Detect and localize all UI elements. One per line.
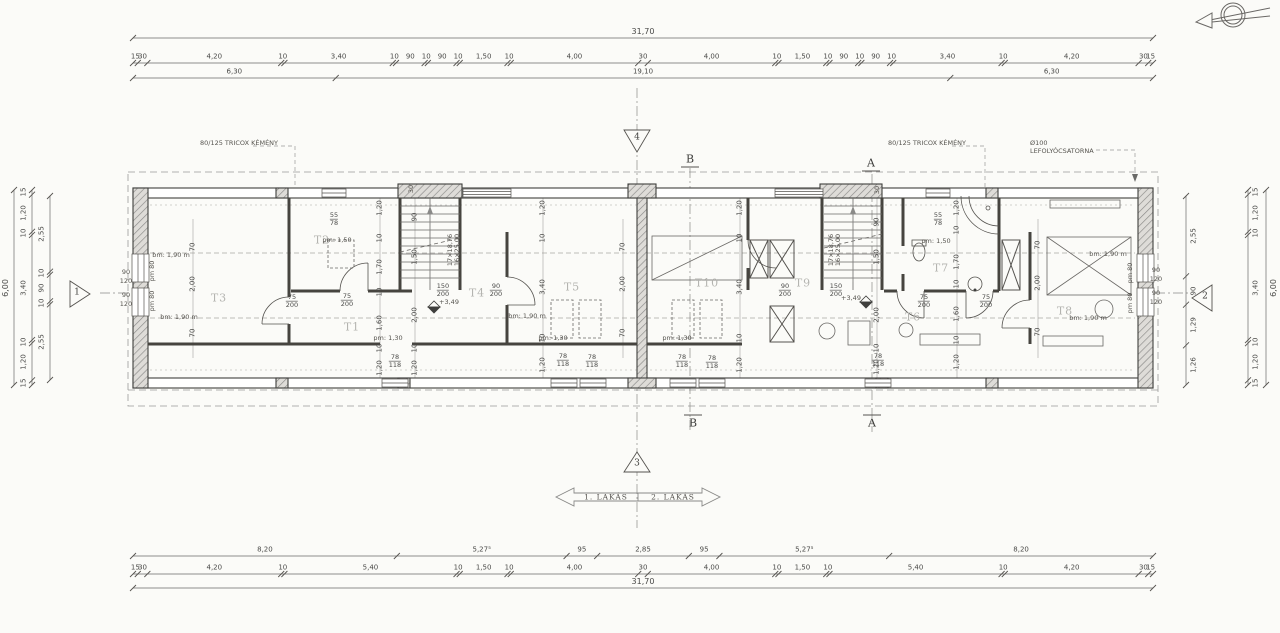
room-label: T10 bbox=[695, 278, 719, 289]
dim-label: 31,70 bbox=[632, 28, 655, 36]
dim-label: 1,20 bbox=[21, 205, 28, 221]
dim-label: 2,55 bbox=[39, 226, 46, 242]
section-b-top: B bbox=[686, 154, 694, 165]
annotation-label: pm: 1,50 bbox=[921, 238, 950, 245]
marker-3-number: 3 bbox=[634, 460, 640, 469]
dim-label: 4,00 bbox=[704, 54, 720, 61]
interior-dim-label: 1,20 bbox=[954, 200, 961, 216]
annotation-label: 16×25,00 bbox=[835, 234, 842, 266]
blueprint-canvas: 80/125 TRICOX KÉMÉNY 80/125 TRICOX KÉMÉN… bbox=[0, 0, 1280, 633]
interior-dim-label: 10 bbox=[954, 226, 961, 235]
annotation-label: pm: 1,50 bbox=[322, 237, 351, 244]
annotation-label: 120 bbox=[120, 301, 132, 308]
interior-dim-label: 70 bbox=[1035, 241, 1042, 250]
room-label: T7 bbox=[933, 263, 949, 274]
interior-dim-label: 70 bbox=[190, 329, 197, 338]
dim-label: 1,26 bbox=[1191, 357, 1198, 373]
dim-label: 10 bbox=[887, 54, 896, 61]
opening-size-label: 78118 bbox=[706, 355, 718, 370]
annotation-label: bm: 1,90 m bbox=[160, 314, 198, 321]
interior-dim-label: 1,20 bbox=[737, 357, 744, 373]
interior-dim-label: 1,20 bbox=[737, 200, 744, 216]
dim-label: 30 bbox=[138, 565, 147, 572]
dim-label: 10 bbox=[278, 54, 287, 61]
dim-label: 10 bbox=[21, 337, 28, 346]
dim-label: 1,29 bbox=[1191, 317, 1198, 333]
dim-label: 6,00 bbox=[2, 279, 10, 297]
chimney-label-right: 80/125 TRICOX KÉMÉNY bbox=[888, 140, 966, 147]
interior-dim-label: 1,20 bbox=[954, 354, 961, 370]
interior-dim-label: 10 bbox=[377, 234, 384, 243]
dim-label: 4,00 bbox=[567, 565, 583, 572]
opening-size-label: 78118 bbox=[586, 354, 598, 369]
interior-dim-label: 3,40 bbox=[737, 279, 744, 295]
interior-dim-label: 1,20 bbox=[412, 360, 419, 376]
dim-label: 15 bbox=[1253, 378, 1260, 387]
dim-label: 10 bbox=[772, 54, 781, 61]
opening-size-label: 5578 bbox=[330, 212, 338, 227]
dim-label: 4,20 bbox=[1064, 54, 1080, 61]
room-label: T4 bbox=[469, 288, 485, 299]
dim-label: 4,20 bbox=[1064, 565, 1080, 572]
interior-dim-label: 1,20 bbox=[540, 200, 547, 216]
interior-dim-label: 1,20 bbox=[377, 360, 384, 376]
room-label: T6 bbox=[905, 312, 921, 323]
interior-dim-label: 10 bbox=[377, 288, 384, 297]
dim-label: 10 bbox=[823, 565, 832, 572]
interior-dim-label: 1,50 bbox=[412, 249, 419, 265]
dim-label: 10 bbox=[823, 54, 832, 61]
opening-size-label: 150200 bbox=[437, 283, 449, 298]
dim-label: 5,27⁵ bbox=[795, 547, 813, 554]
dim-label: 10 bbox=[390, 54, 399, 61]
room-label: T3 bbox=[211, 293, 227, 304]
room-label: T5 bbox=[564, 282, 580, 293]
dim-label: 1,50 bbox=[795, 565, 811, 572]
dim-label: 30 bbox=[639, 565, 648, 572]
dim-label: 4,20 bbox=[206, 54, 222, 61]
dim-label: 6,30 bbox=[227, 69, 243, 76]
annotation-label: 30 bbox=[408, 185, 415, 193]
dim-label: 5,27⁵ bbox=[473, 547, 491, 554]
apartment-2-label: 2. LAKÁS bbox=[651, 493, 695, 501]
annotation-label: 30 bbox=[874, 186, 881, 194]
dim-label: 1,20 bbox=[1253, 354, 1260, 370]
annotation-label: 120 bbox=[120, 278, 132, 285]
dim-label: 8,20 bbox=[1013, 547, 1029, 554]
opening-size-label: 75200 bbox=[918, 294, 930, 309]
dim-label: 30 bbox=[138, 54, 147, 61]
annotation-label: 90 bbox=[122, 292, 130, 299]
interior-dim-label: 1,20 bbox=[377, 200, 384, 216]
dim-label: 3,40 bbox=[1253, 280, 1260, 296]
interior-dim-label: 1,60 bbox=[954, 306, 961, 322]
interior-dim-label: 1,50 bbox=[874, 249, 881, 265]
dim-label: 90 bbox=[406, 54, 415, 61]
interior-dim-label: 90 bbox=[874, 218, 881, 227]
dim-label: 15 bbox=[21, 188, 28, 197]
dim-label: 10 bbox=[999, 565, 1008, 572]
gutter-label-diameter: Ø100 bbox=[1030, 140, 1048, 147]
dim-label: 10 bbox=[505, 565, 514, 572]
apartment-arrow bbox=[556, 488, 720, 506]
dim-label: 10 bbox=[999, 54, 1008, 61]
annotation-label: bm: 1,90 m bbox=[1069, 315, 1107, 322]
interior-dim-label: 2,00 bbox=[620, 276, 627, 292]
north-arrow-icon bbox=[1196, 3, 1270, 28]
dim-label: 3,40 bbox=[21, 280, 28, 296]
interior-dim-label: 70 bbox=[190, 243, 197, 252]
dim-label: 10 bbox=[1253, 229, 1260, 238]
dim-label: 6,30 bbox=[1044, 69, 1060, 76]
marker-2-number: 2 bbox=[1202, 293, 1208, 302]
dim-label: 95 bbox=[700, 547, 709, 554]
opening-size-label: 5578 bbox=[934, 212, 942, 227]
interior-dim-label: 10 bbox=[737, 234, 744, 243]
annotation-label: bm: 1,90 m bbox=[508, 313, 546, 320]
dim-label: 8,20 bbox=[257, 547, 273, 554]
dim-label: 2,55 bbox=[1191, 228, 1198, 244]
marker-4-number: 4 bbox=[634, 134, 640, 143]
annotation-label: 120 bbox=[1150, 299, 1162, 306]
annotation-label: pm 80 bbox=[1127, 293, 1134, 314]
dim-label: 90 bbox=[438, 54, 447, 61]
dim-label: 5,40 bbox=[908, 565, 924, 572]
dim-label: 10 bbox=[772, 565, 781, 572]
interior-dim-label: 1,20 bbox=[540, 357, 547, 373]
dim-label: 95 bbox=[577, 547, 586, 554]
interior-dim-label: 1,60 bbox=[377, 315, 384, 331]
opening-size-label: 90200 bbox=[779, 283, 791, 298]
annotation-label: +3,49 bbox=[841, 295, 861, 302]
interior-dim-label: 70 bbox=[620, 243, 627, 252]
dim-label: 10 bbox=[1253, 337, 1260, 346]
interior-dim-label: 10 bbox=[540, 234, 547, 243]
dim-label: 4,20 bbox=[206, 565, 222, 572]
opening-size-label: 75200 bbox=[286, 294, 298, 309]
triangle-1-icon bbox=[70, 281, 90, 307]
dim-label: 90 bbox=[871, 54, 880, 61]
annotation-label: 120 bbox=[1150, 276, 1162, 283]
interior-dim-label: 90 bbox=[412, 213, 419, 222]
level-marker-icons bbox=[428, 296, 872, 313]
chimney-label-left: 80/125 TRICOX KÉMÉNY bbox=[200, 140, 278, 147]
annotation-label: pm 80 bbox=[149, 291, 156, 312]
section-b-bottom: B bbox=[689, 418, 697, 429]
interior-dim-label: 2,00 bbox=[190, 276, 197, 292]
interior-dim-label: 10 bbox=[377, 344, 384, 353]
room-label: T1 bbox=[344, 322, 360, 333]
opening-size-label: 75200 bbox=[980, 294, 992, 309]
gutter-label-name: LEFOLYÓCSATORNA bbox=[1030, 148, 1094, 155]
dim-label: 30 bbox=[639, 54, 648, 61]
dim-label: 15 bbox=[1146, 54, 1155, 61]
dim-label: 10 bbox=[505, 54, 514, 61]
interior-dim-label: 1,70 bbox=[954, 254, 961, 270]
interior-dim-label: 2,00 bbox=[874, 307, 881, 323]
annotation-label: pm 80 bbox=[149, 261, 156, 282]
gutter-arrowhead bbox=[1132, 174, 1138, 182]
dim-label: 1,50 bbox=[795, 54, 811, 61]
dim-label: 31,70 bbox=[632, 578, 655, 586]
dim-label: 90 bbox=[39, 284, 46, 293]
section-a-top: A bbox=[867, 158, 875, 169]
dim-label: 10 bbox=[454, 565, 463, 572]
annotation-label: 16×25,00 bbox=[454, 234, 461, 266]
dim-label: 1,50 bbox=[476, 565, 492, 572]
dim-label: 1,50 bbox=[476, 54, 492, 61]
dim-label: 2,55 bbox=[39, 334, 46, 350]
dim-label: 3,40 bbox=[331, 54, 347, 61]
annotation-label: +3,49 bbox=[439, 299, 459, 306]
interior-dim-label: 1,70 bbox=[377, 259, 384, 275]
annotation-label: pm: 1,30 bbox=[538, 335, 567, 342]
dim-label: 10 bbox=[855, 54, 864, 61]
dim-label: 4,00 bbox=[567, 54, 583, 61]
interior-dim-label: 2,00 bbox=[1035, 275, 1042, 291]
dim-label: 2,85 bbox=[635, 547, 651, 554]
dim-label: 10 bbox=[39, 269, 46, 278]
opening-size-label: 78118 bbox=[557, 353, 569, 368]
opening-size-label: 78118 bbox=[676, 354, 688, 369]
dim-label: 4,00 bbox=[704, 565, 720, 572]
annotation-label: bm: 1,90 m bbox=[152, 252, 190, 259]
interior-dim-label: 10 bbox=[737, 334, 744, 343]
interior-dim-label: 2,00 bbox=[412, 307, 419, 323]
opening-size-label: 150200 bbox=[830, 283, 842, 298]
opening-size-label: 75200 bbox=[341, 293, 353, 308]
interior-walls bbox=[148, 198, 1030, 344]
dim-label: 1,20 bbox=[1253, 205, 1260, 221]
apartment-1-label: 1. LAKÁS bbox=[584, 493, 628, 501]
dim-label: 15 bbox=[1253, 188, 1260, 197]
dim-label: 5,40 bbox=[363, 565, 379, 572]
interior-dim-label: 70 bbox=[620, 329, 627, 338]
annotation-label: 90 bbox=[1152, 290, 1160, 297]
interior-dim-label: 70 bbox=[1035, 328, 1042, 337]
interior-dim-label: 10 bbox=[954, 280, 961, 289]
annotation-label: bm: 1,90 m bbox=[1089, 251, 1127, 258]
dim-label: 90 bbox=[1191, 286, 1198, 295]
annotation-label: 90 bbox=[1152, 267, 1160, 274]
dim-label: 3,40 bbox=[940, 54, 956, 61]
dim-label: 1,20 bbox=[21, 354, 28, 370]
annotation-label: pm: 1,30 bbox=[662, 335, 691, 342]
opening-size-label: 78118 bbox=[389, 354, 401, 369]
interior-dim-label: 10 bbox=[412, 344, 419, 353]
dim-label: 15 bbox=[1146, 565, 1155, 572]
dim-label: 10 bbox=[39, 298, 46, 307]
dim-label: 10 bbox=[278, 565, 287, 572]
annotation-label: pm 80 bbox=[1127, 263, 1134, 284]
dim-label: 19,10 bbox=[633, 69, 653, 76]
annotation-label: 90 bbox=[122, 269, 130, 276]
dim-label: 10 bbox=[422, 54, 431, 61]
room-label: T9 bbox=[795, 278, 811, 289]
opening-size-label: 78118 bbox=[872, 353, 884, 368]
dim-label: 6,00 bbox=[1270, 279, 1278, 297]
marker-1-number: 1 bbox=[74, 289, 80, 298]
annotation-label: pm: 1,30 bbox=[373, 335, 402, 342]
interior-dim-label: 3,40 bbox=[540, 279, 547, 295]
section-a-bottom: A bbox=[868, 418, 876, 429]
interior-dim-lines bbox=[193, 198, 1038, 380]
dim-label: 10 bbox=[21, 229, 28, 238]
dim-label: 90 bbox=[839, 54, 848, 61]
dim-label: 10 bbox=[454, 54, 463, 61]
opening-size-label: 90200 bbox=[490, 283, 502, 298]
dim-label: 15 bbox=[21, 378, 28, 387]
interior-dim-label: 10 bbox=[954, 336, 961, 345]
